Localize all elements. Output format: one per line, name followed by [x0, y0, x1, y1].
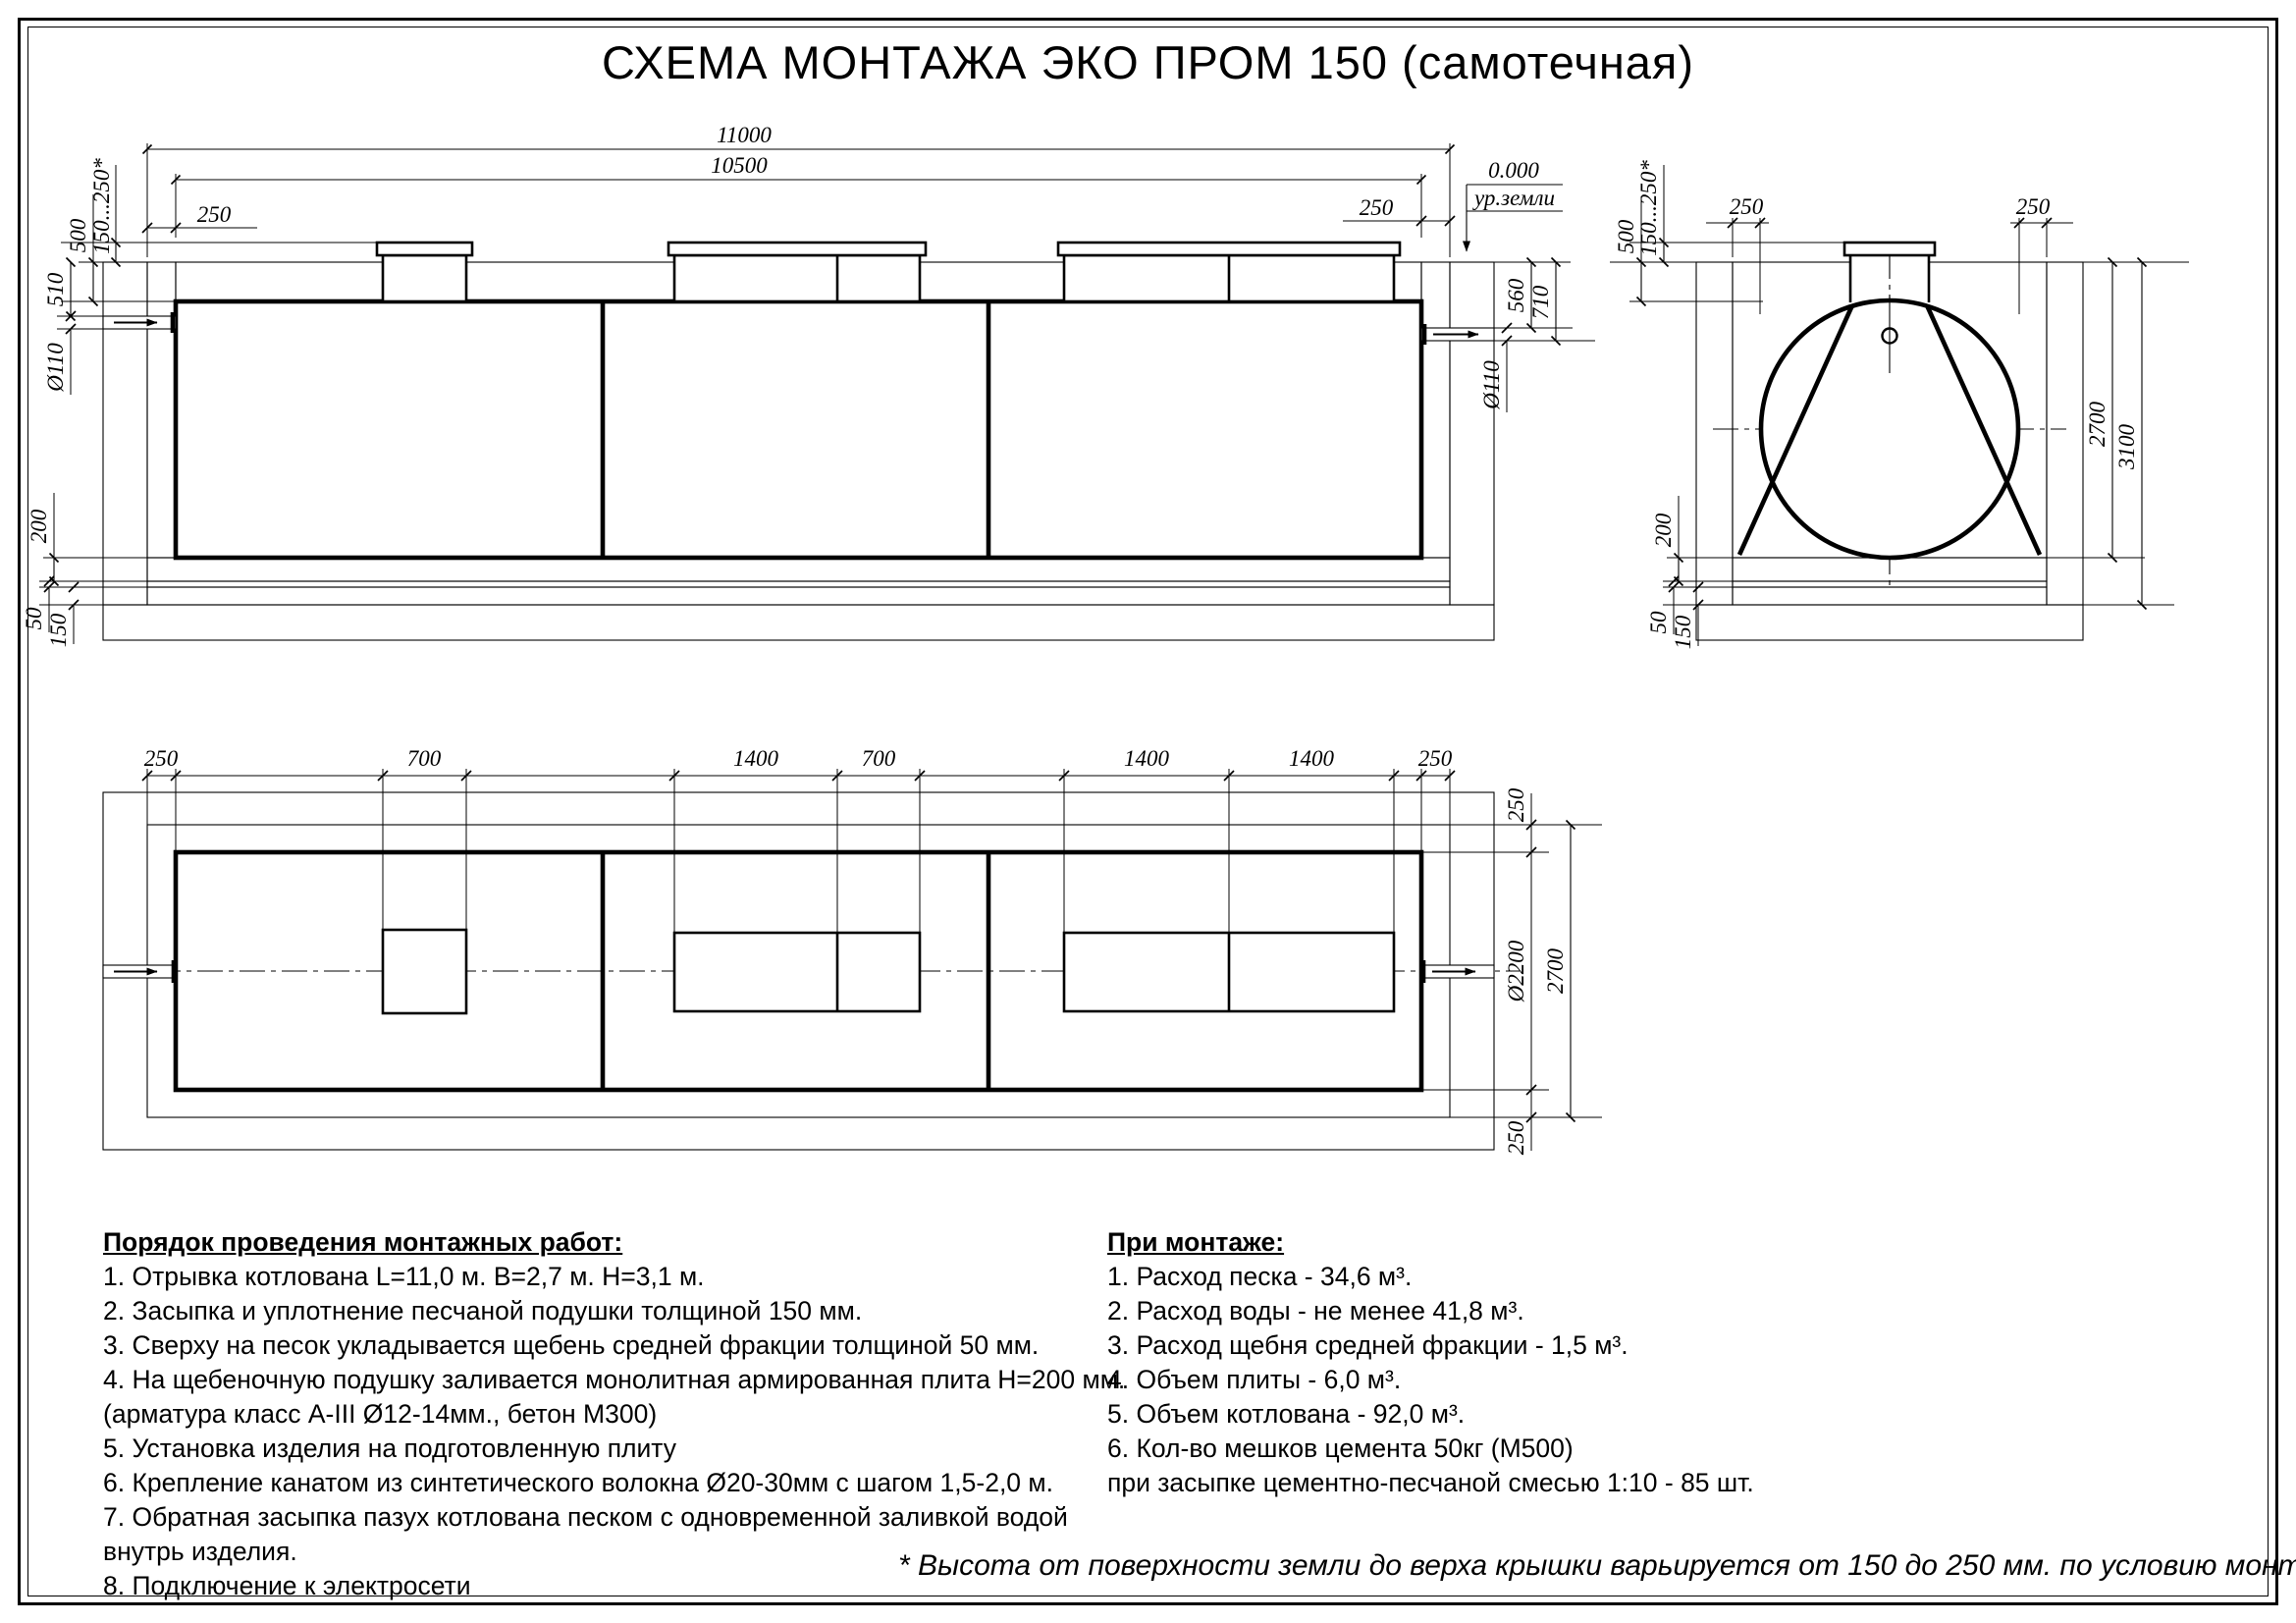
list-line: 4. На щебеночную подушку заливается моно… [103, 1363, 1125, 1397]
dim-label: 710 [1528, 285, 1553, 319]
dim-label: 510 [43, 272, 68, 306]
list-line: 6. Крепление канатом из синтетического в… [103, 1466, 1125, 1500]
dim-label: Ø110 [43, 343, 68, 393]
pit-bottom [1696, 605, 2083, 640]
list-line: 3. Расход щебня средней фракции - 1,5 м³… [1107, 1328, 1754, 1363]
cross-section: 500 150...250* 250 250 2700 3100 [1610, 160, 2189, 650]
neck-group-3-plan [1064, 933, 1394, 1011]
list-line: 4. Объем плиты - 6,0 м³. [1107, 1363, 1754, 1397]
neck-1-plan [383, 930, 466, 1013]
dim-label: 2700 [2085, 402, 2109, 448]
dim-label: 1400 [1289, 746, 1335, 771]
list-line: 2. Засыпка и уплотнение песчаной подушки… [103, 1294, 1125, 1328]
dim-label: 1400 [733, 746, 779, 771]
installation-specs-heading: При монтаже: [1107, 1225, 1754, 1260]
list-line: при засыпке цементно-песчаной смесью 1:1… [1107, 1466, 1754, 1500]
pit-wall-left [1696, 262, 1733, 605]
tank-neck-1 [377, 243, 472, 301]
dim-label: Ø110 [1479, 360, 1504, 410]
sand-cushion [147, 587, 1450, 605]
dim-label: 250 [1360, 195, 1394, 220]
list-line: 3. Сверху на песок укладывается щебень с… [103, 1328, 1125, 1363]
tank-neck-group-3 [1058, 243, 1400, 301]
dim-label: 250 [2016, 194, 2051, 219]
dim-label: Ø2200 [1504, 940, 1528, 1002]
dim-label: 250 [1418, 746, 1453, 771]
concrete-slab [147, 558, 1450, 581]
pit-wall-left [103, 262, 147, 605]
longitudinal-section: 11000 10500 250 250 500 150...250* [22, 123, 1595, 647]
ground-level-label: ур.земли [1472, 186, 1555, 210]
list-line: 6. Кол-во мешков цемента 50кг (М500) [1107, 1432, 1754, 1466]
list-line: 5. Установка изделия на подготовленную п… [103, 1432, 1125, 1466]
sand-backfill-right [1421, 262, 1450, 558]
list-line: 1. Отрывка котлована L=11,0 м. B=2,7 м. … [103, 1260, 1125, 1294]
list-line: 5. Объем котлована - 92,0 м³. [1107, 1397, 1754, 1432]
installation-steps-heading: Порядок проведения монтажных работ: [103, 1225, 1125, 1260]
dim-label: 700 [407, 746, 442, 771]
dim-label: 560 [1504, 278, 1528, 312]
sand-backfill-left [147, 262, 176, 558]
dim-label: 11000 [717, 123, 772, 147]
neck-lid [1844, 243, 1935, 255]
pit-bottom [103, 605, 1494, 640]
dim-label: 250 [197, 202, 232, 227]
list-line: (арматура класс А-III Ø12-14мм., бетон М… [103, 1397, 1125, 1432]
gravel-layer [147, 581, 1450, 587]
dim-label: 150 [1671, 615, 1695, 649]
outlet-pipe-plan [1421, 960, 1494, 983]
dim-label: 700 [862, 746, 896, 771]
dim-label: 500 [66, 218, 90, 252]
sand-cushion [1733, 587, 2047, 605]
tank-body [176, 301, 1421, 558]
list-line: 7. Обратная засыпка пазух котлована песк… [103, 1500, 1125, 1535]
dim-label: 50 [22, 607, 46, 630]
outlet-pipe [1421, 324, 1494, 345]
footnote: * Высота от поверхности земли до верха к… [898, 1549, 2296, 1583]
dim-label: 500 [1614, 219, 1638, 253]
dim-label: 150 [46, 613, 71, 647]
drawing-sheet: { "title": "СХЕМА МОНТАЖА ЭКО ПРОМ 150 (… [0, 0, 2296, 1623]
dim-label: 250 [1504, 787, 1528, 822]
dim-label: 3100 [2114, 424, 2139, 471]
dim-label: 150...250* [1636, 160, 1661, 256]
elevation-zero-label: 0.000 [1488, 158, 1539, 183]
tank-neck-group-2 [668, 243, 926, 301]
dim-label: 200 [27, 509, 51, 543]
dim-label: 250 [1730, 194, 1764, 219]
dim-label: 150...250* [89, 158, 114, 254]
neck-group-2-plan [674, 933, 920, 1011]
dim-label: 10500 [711, 153, 768, 178]
list-line: 2. Расход воды - не менее 41,8 м³. [1107, 1294, 1754, 1328]
dim-label: 2700 [1543, 948, 1568, 995]
installation-specs: При монтаже: 1. Расход песка - 34,6 м³. … [1107, 1225, 1754, 1500]
pit-wall-right [1450, 262, 1494, 605]
dim-label: 250 [144, 746, 179, 771]
inlet-pipe-plan [103, 960, 176, 983]
inlet-pipe [103, 312, 176, 333]
dim-label: 250 [1504, 1120, 1528, 1155]
dim-label: 50 [1646, 611, 1671, 634]
dim-label: 1400 [1124, 746, 1170, 771]
plan-view: 250 700 1400 700 1400 1400 250 250 Ø2200… [103, 746, 1602, 1155]
installation-steps: Порядок проведения монтажных работ: 1. О… [103, 1225, 1125, 1603]
list-line: 1. Расход песка - 34,6 м³. [1107, 1260, 1754, 1294]
dim-label: 200 [1651, 513, 1676, 547]
pit-wall-right [2047, 262, 2083, 605]
